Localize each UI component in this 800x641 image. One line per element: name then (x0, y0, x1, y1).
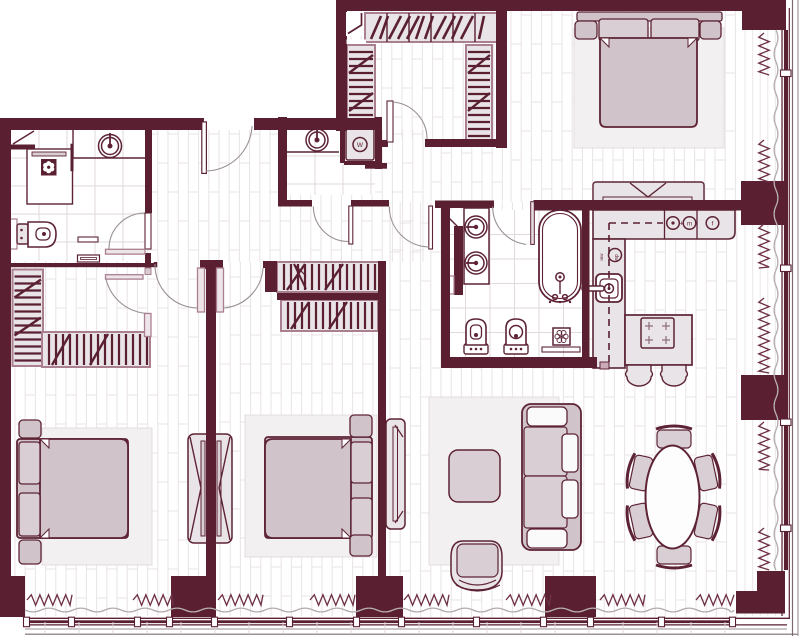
svg-text:m: m (687, 222, 692, 228)
svg-text:mw: mw (599, 253, 604, 261)
svg-text:dw: dw (613, 254, 619, 261)
svg-text:W: W (357, 142, 364, 149)
